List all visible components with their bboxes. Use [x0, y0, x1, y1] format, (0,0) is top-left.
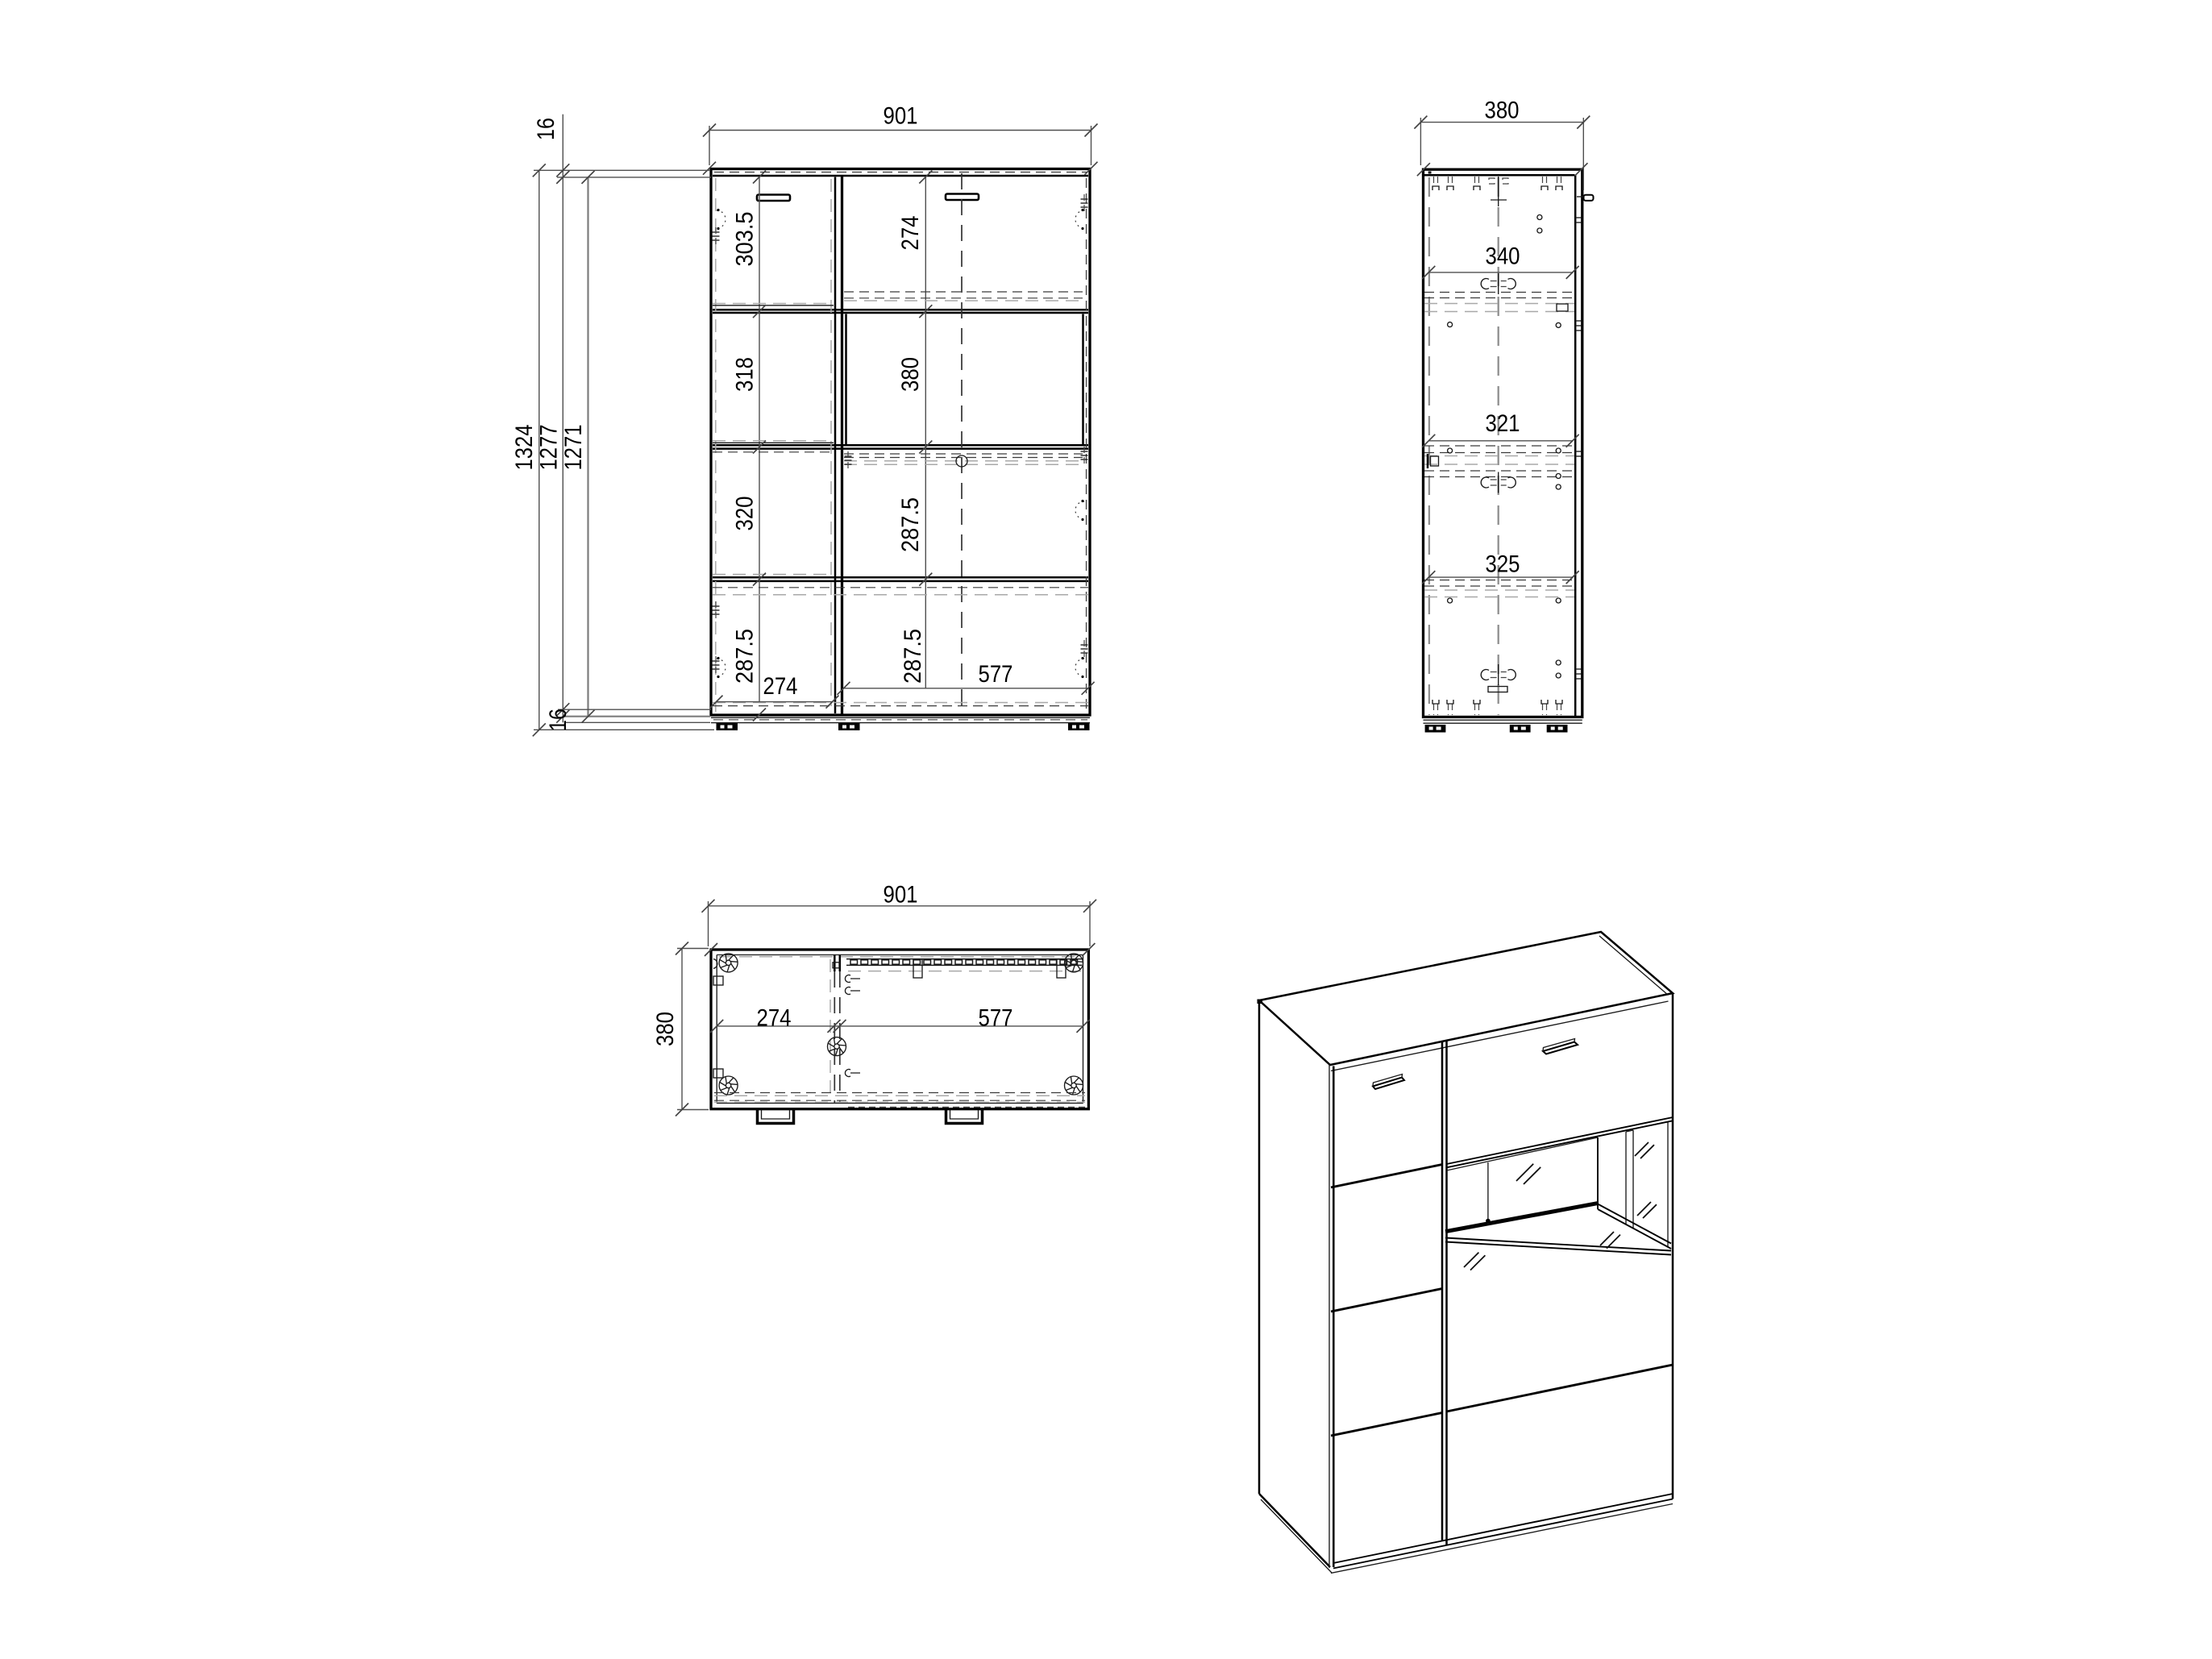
svg-text:274: 274 [897, 216, 924, 251]
svg-text:16: 16 [533, 118, 559, 140]
svg-text:325: 325 [1486, 551, 1520, 578]
svg-text:1271: 1271 [560, 425, 587, 471]
svg-text:16: 16 [545, 709, 572, 731]
svg-text:274: 274 [757, 1005, 792, 1032]
svg-text:287.5: 287.5 [897, 497, 924, 552]
svg-text:901: 901 [884, 103, 918, 130]
svg-text:274: 274 [763, 673, 798, 700]
svg-text:287.5: 287.5 [900, 629, 926, 684]
svg-text:901: 901 [884, 882, 918, 908]
svg-text:380: 380 [652, 1012, 679, 1046]
svg-text:321: 321 [1486, 410, 1520, 437]
svg-text:1277: 1277 [536, 425, 563, 471]
svg-text:577: 577 [979, 661, 1013, 688]
svg-text:380: 380 [1485, 98, 1520, 124]
svg-text:577: 577 [979, 1005, 1013, 1032]
svg-text:320: 320 [732, 497, 759, 531]
svg-text:340: 340 [1486, 243, 1520, 270]
svg-text:318: 318 [732, 357, 759, 392]
svg-text:303.5: 303.5 [732, 212, 759, 267]
svg-text:380: 380 [897, 357, 924, 392]
svg-text:1324: 1324 [511, 425, 538, 471]
svg-text:287.5: 287.5 [732, 629, 759, 684]
